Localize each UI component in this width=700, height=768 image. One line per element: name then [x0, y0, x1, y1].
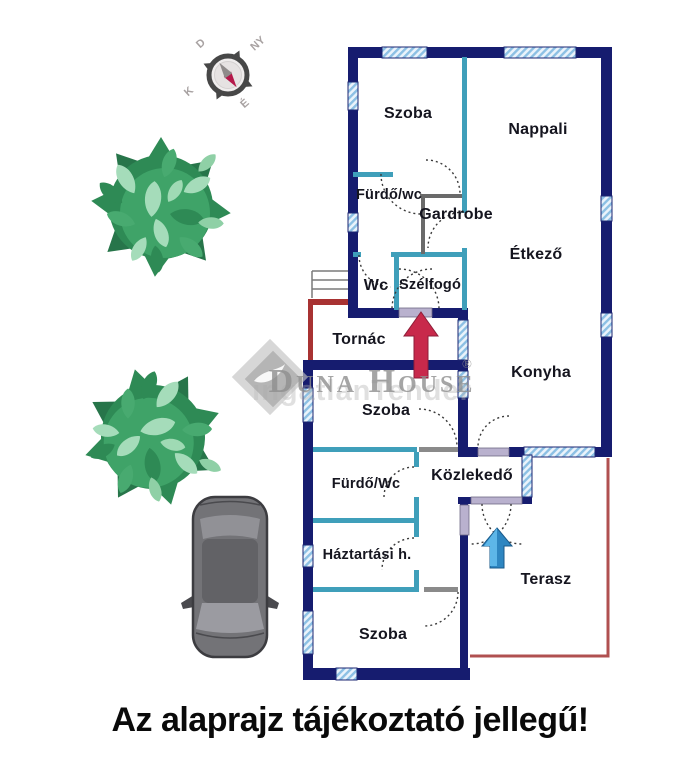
- compass-label-west: NY: [248, 34, 268, 54]
- compass-label-east: K: [182, 85, 196, 99]
- room-label-szoba-bottom: Szoba: [359, 626, 407, 644]
- watermark-brand: Duna House: [269, 363, 476, 400]
- watermark-registered-mark: ®: [462, 356, 472, 371]
- compass-label-south: D: [194, 37, 208, 51]
- room-label-haztartasi: Háztartási h.: [323, 547, 412, 563]
- bush-top: [90, 137, 232, 278]
- floor-plan-scene: D NY K É: [0, 0, 700, 768]
- room-label-furdo-wc-mid: Fürdő/Wc: [332, 476, 400, 492]
- room-label-szoba-top: Szoba: [384, 105, 432, 123]
- floor-plan-svg: D NY K É: [0, 0, 700, 768]
- room-label-nappali: Nappali: [508, 121, 567, 139]
- room-label-szelfogo: Szélfogó: [399, 277, 461, 293]
- room-label-tornac: Tornác: [332, 331, 385, 349]
- compass-rose: D NY K É: [182, 34, 268, 111]
- room-label-wc: Wc: [364, 277, 388, 295]
- room-label-gardrobe: Gardrobe: [419, 206, 493, 224]
- room-label-furdo-wc-top: Fürdő/wc: [356, 187, 422, 203]
- room-label-etkezo: Étkező: [510, 246, 563, 264]
- interior-walls: [313, 57, 467, 592]
- disclaimer-text: Az alaprajz tájékoztató jellegű!: [0, 701, 700, 740]
- terrace-arrow-icon: [482, 528, 512, 568]
- room-label-szoba-mid: Szoba: [362, 402, 410, 420]
- room-label-terasz: Terasz: [521, 571, 572, 589]
- watermark: ingatlanTender Duna House ®: [232, 339, 476, 415]
- car-top-view: [181, 497, 279, 657]
- gray-walls: [420, 194, 462, 254]
- entrance-steps: [308, 271, 348, 365]
- room-label-konyha: Konyha: [511, 364, 571, 382]
- room-label-kozlekedo: Közlekedő: [431, 467, 513, 485]
- compass-label-north: É: [238, 96, 252, 111]
